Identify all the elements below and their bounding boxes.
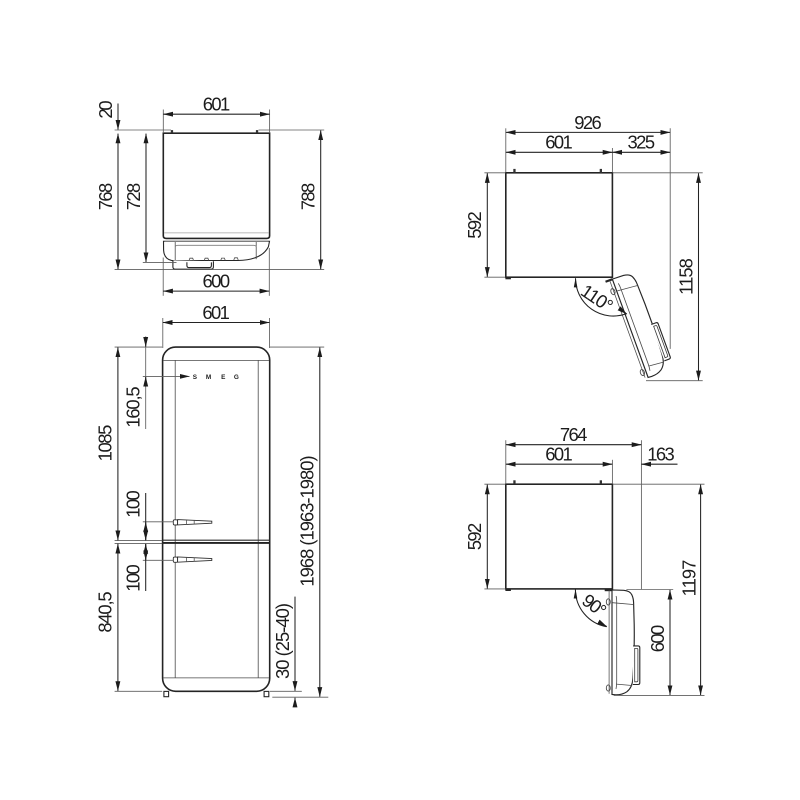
svg-text:840,5: 840,5 xyxy=(95,591,116,632)
svg-text:20: 20 xyxy=(95,100,116,118)
svg-text:592: 592 xyxy=(464,523,485,551)
svg-text:601: 601 xyxy=(203,94,231,115)
svg-text:728: 728 xyxy=(123,183,144,211)
svg-text:M: M xyxy=(206,374,211,381)
svg-text:325: 325 xyxy=(628,132,656,153)
svg-text:100: 100 xyxy=(123,564,144,592)
svg-text:601: 601 xyxy=(202,302,230,323)
svg-text:601: 601 xyxy=(545,444,573,465)
svg-text:600: 600 xyxy=(647,625,668,653)
svg-text:1197: 1197 xyxy=(679,560,700,597)
svg-text:S: S xyxy=(193,374,198,381)
svg-text:G: G xyxy=(234,374,239,381)
svg-text:600: 600 xyxy=(203,270,231,291)
svg-text:926: 926 xyxy=(574,112,602,133)
svg-text:E: E xyxy=(221,374,226,381)
svg-text:1968 (1963-1980): 1968 (1963-1980) xyxy=(297,455,318,586)
svg-text:1085: 1085 xyxy=(95,425,116,462)
svg-text:764: 764 xyxy=(560,424,588,445)
svg-text:100: 100 xyxy=(123,490,144,518)
svg-text:30 (25-40): 30 (25-40) xyxy=(272,603,293,679)
svg-text:592: 592 xyxy=(464,211,485,239)
svg-text:768: 768 xyxy=(95,183,116,211)
svg-text:160,5: 160,5 xyxy=(123,386,144,427)
svg-text:601: 601 xyxy=(545,132,573,153)
svg-text:163: 163 xyxy=(647,444,675,465)
svg-text:1158: 1158 xyxy=(675,258,696,295)
svg-text:788: 788 xyxy=(298,183,319,211)
